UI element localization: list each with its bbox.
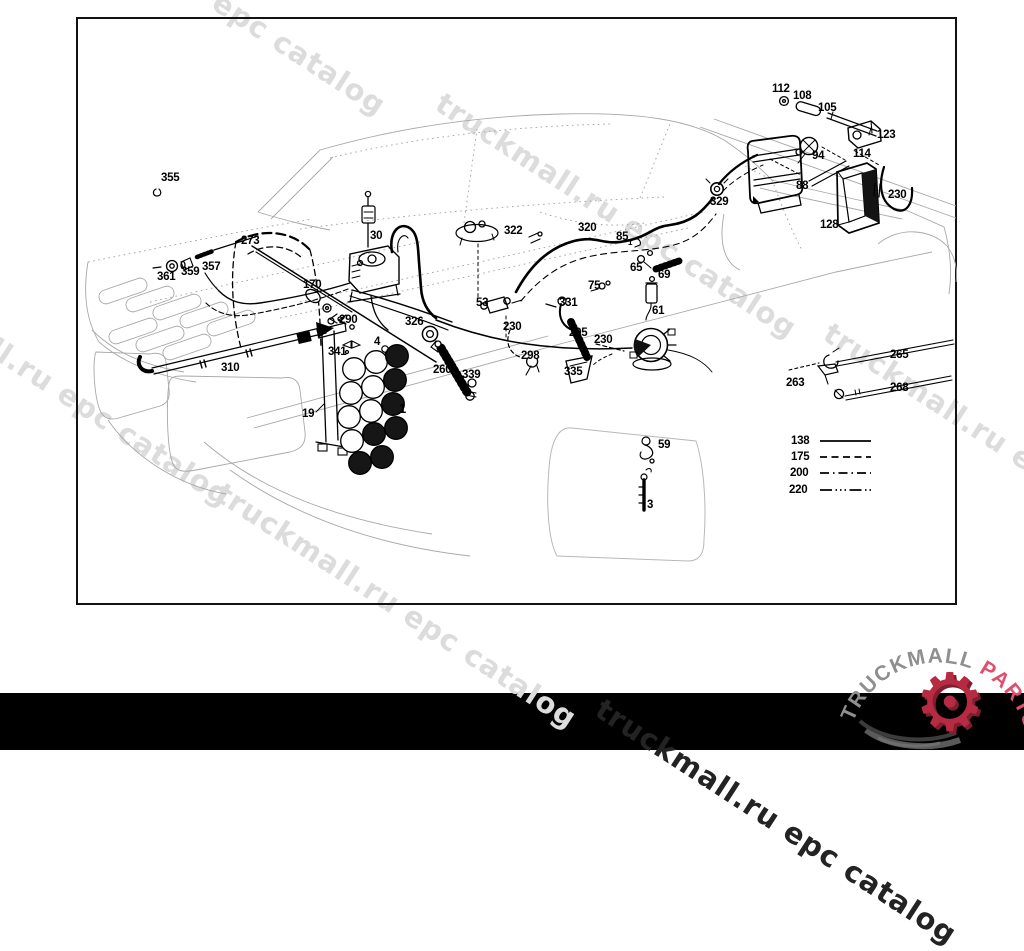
- part-label-320: 320: [578, 222, 596, 234]
- epc-catalog-page: { "page": {"background": "#ffffff", "bot…: [0, 0, 1024, 750]
- part-label-263: 263: [786, 377, 804, 389]
- legend-label-200: 200: [790, 467, 808, 479]
- part-label-94: 94: [812, 150, 824, 162]
- part-label-3: 3: [647, 499, 653, 511]
- part-label-295: 295: [569, 327, 587, 339]
- part-label-53: 53: [476, 297, 488, 309]
- part-label-1: 1: [399, 401, 406, 416]
- part-label-335: 335: [564, 366, 582, 378]
- part-label-329: 329: [710, 196, 728, 208]
- part-label-108: 108: [793, 90, 811, 102]
- part-label-355: 355: [161, 172, 179, 184]
- part-label-123: 123: [877, 129, 895, 141]
- part-label-341: 341: [328, 346, 346, 358]
- truckmall-parts-logo: ⚙ ⚙ TRUCKMALL PARTS: [838, 626, 1024, 750]
- part-label-298: 298: [521, 350, 539, 362]
- part-label-361: 361: [157, 271, 175, 283]
- part-label-75: 75: [588, 280, 600, 292]
- part-label-128: 128: [820, 219, 838, 231]
- part-label-322: 322: [504, 225, 522, 237]
- part-label-339: 339: [462, 369, 480, 381]
- part-label-69: 69: [658, 269, 670, 281]
- part-label-105: 105: [818, 102, 836, 114]
- part-label-65: 65: [630, 262, 642, 274]
- part-label-19: 19: [302, 408, 314, 420]
- legend-label-175: 175: [791, 451, 809, 463]
- part-label-59: 59: [658, 439, 670, 451]
- part-label-112: 112: [772, 83, 790, 95]
- part-label-61: 61: [652, 305, 664, 317]
- part-label-273: 273: [241, 235, 259, 247]
- part-label-268: 268: [890, 382, 908, 394]
- part-label-230: 230: [503, 321, 521, 333]
- part-label-310: 310: [221, 362, 239, 374]
- part-label-326: 326: [405, 316, 423, 328]
- part-label-230: 230: [888, 189, 906, 201]
- legend-label-220: 220: [789, 484, 807, 496]
- part-label-290: 290: [339, 314, 357, 326]
- part-label-4: 4: [374, 336, 380, 348]
- part-label-85: 85: [616, 231, 628, 243]
- part-label-265: 265: [890, 349, 908, 361]
- part-label-359: 359: [181, 266, 199, 278]
- legend-label-138: 138: [791, 435, 809, 447]
- part-label-30: 30: [370, 230, 382, 242]
- part-label-331: 331: [559, 297, 577, 309]
- part-label-114: 114: [853, 148, 871, 160]
- part-label-170: 170: [303, 279, 321, 291]
- part-label-260: 260: [433, 364, 451, 376]
- part-label-357: 357: [202, 261, 220, 273]
- part-label-1: 1: [628, 238, 632, 247]
- part-label-88: 88: [796, 180, 808, 192]
- part-label-230: 230: [594, 334, 612, 346]
